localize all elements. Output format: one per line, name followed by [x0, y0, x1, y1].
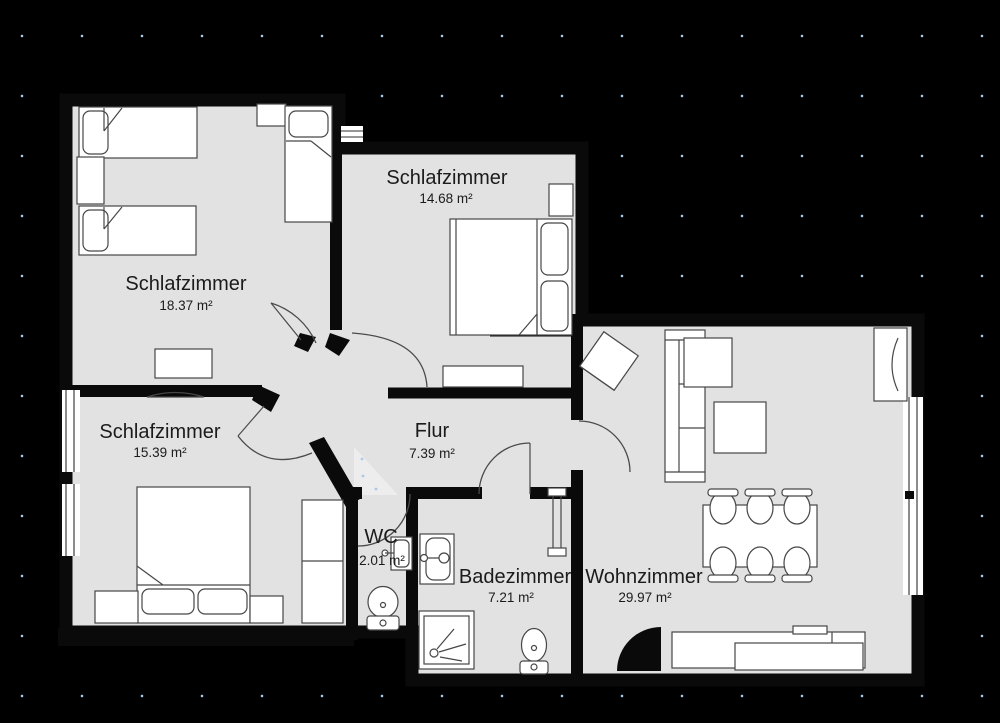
single-bed — [79, 107, 197, 158]
window — [62, 484, 80, 556]
window — [341, 126, 363, 142]
toilet — [367, 587, 399, 631]
vanity-sink — [420, 534, 454, 584]
nightstand — [77, 157, 104, 204]
window — [62, 390, 80, 472]
dresser — [155, 349, 212, 378]
nightstand — [95, 591, 138, 623]
wardrobe — [302, 500, 343, 623]
room-area-bedroom-2: 14.68 m² — [419, 191, 473, 206]
nightstand — [250, 596, 283, 623]
nightstand — [257, 104, 286, 126]
toilet — [520, 629, 548, 675]
single-bed — [285, 106, 332, 222]
floorplan-drawing: Schlafzimmer 18.37 m² Schlafzimmer 14.68… — [0, 0, 1000, 723]
double-bed — [450, 219, 572, 335]
floorplan-canvas: Schlafzimmer 18.37 m² Schlafzimmer 14.68… — [0, 0, 1000, 723]
room-area-living-room: 29.97 m² — [618, 590, 672, 605]
coffee-table — [714, 402, 766, 453]
dining-set — [703, 489, 817, 582]
room-area-bedroom-3: 15.39 m² — [133, 445, 187, 460]
room-label-bedroom-3: Schlafzimmer — [99, 421, 220, 443]
room-area-bedroom-1: 18.37 m² — [159, 298, 213, 313]
dresser — [443, 366, 523, 387]
room-label-wc: WC — [364, 526, 397, 548]
room-label-bedroom-2: Schlafzimmer — [386, 167, 507, 189]
window — [903, 397, 923, 595]
tv-cabinet — [874, 328, 907, 401]
double-bed — [137, 487, 250, 623]
room-label-hallway: Flur — [415, 420, 450, 442]
chaise — [684, 338, 732, 387]
shower — [419, 611, 474, 669]
nightstand — [549, 184, 573, 216]
room-label-bedroom-1: Schlafzimmer — [125, 273, 246, 295]
room-label-living-room: Wohnzimmer — [585, 566, 703, 588]
sideboard — [672, 626, 865, 670]
single-bed — [79, 206, 196, 255]
room-area-hallway: 7.39 m² — [409, 446, 455, 461]
room-area-bathroom: 7.21 m² — [488, 590, 534, 605]
room-label-bathroom: Badezimmer — [459, 566, 572, 588]
room-area-wc: 2.01 m² — [359, 553, 405, 568]
